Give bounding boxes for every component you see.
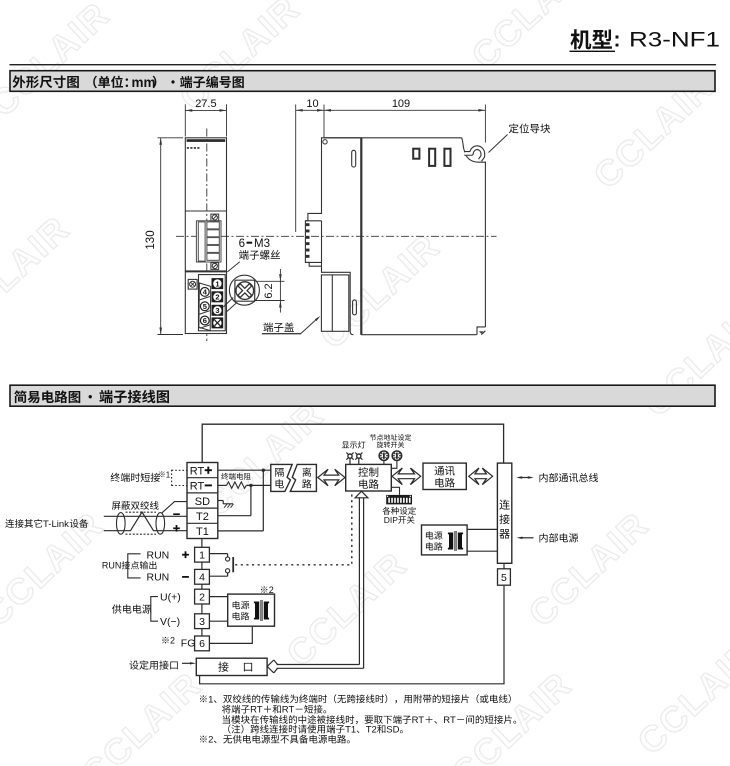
svg-text:CCLAIR: CCLAIR	[278, 543, 414, 674]
svg-text:M3: M3	[254, 238, 270, 250]
svg-text:R3-NF1: R3-NF1	[629, 29, 720, 52]
svg-text:T2: T2	[196, 511, 209, 523]
svg-text:6: 6	[199, 638, 205, 650]
svg-text:RT: RT	[282, 705, 295, 716]
svg-text:3: 3	[215, 306, 219, 315]
svg-text:RUN: RUN	[102, 561, 122, 571]
svg-text:U(+): U(+)	[160, 591, 181, 603]
svg-text:RT: RT	[250, 705, 263, 716]
svg-text::: :	[614, 29, 621, 52]
svg-text:2: 2	[199, 591, 205, 603]
svg-text:RT: RT	[190, 465, 205, 477]
svg-text:5: 5	[501, 572, 507, 584]
svg-text:CCLAIR: CCLAIR	[629, 631, 730, 762]
svg-text:6: 6	[239, 238, 245, 250]
svg-text:V(−): V(−)	[160, 616, 180, 628]
svg-text:CCLAIR: CCLAIR	[0, 207, 78, 338]
svg-text:RT: RT	[443, 715, 456, 726]
svg-text:2: 2	[208, 735, 213, 746]
svg-text:T-Link: T-Link	[43, 519, 69, 530]
svg-text:SD: SD	[195, 496, 210, 508]
svg-text:CCLAIR: CCLAIR	[443, 663, 579, 766]
svg-text:27.5: 27.5	[195, 98, 216, 110]
svg-text:FG: FG	[181, 637, 196, 649]
svg-text:4: 4	[199, 572, 205, 584]
svg-text:T1: T1	[345, 725, 356, 736]
svg-text:CCLAIR: CCLAIR	[171, 0, 307, 118]
svg-text:1: 1	[166, 470, 171, 479]
svg-text:CCLAIR: CCLAIR	[520, 503, 656, 634]
svg-text:T1: T1	[196, 526, 209, 538]
svg-text:RUN: RUN	[147, 572, 170, 584]
svg-text:1: 1	[215, 279, 219, 288]
svg-text:6: 6	[203, 316, 207, 325]
svg-text:130: 130	[145, 230, 157, 249]
svg-text:RUN: RUN	[147, 549, 170, 561]
svg-text:mm: mm	[132, 75, 156, 90]
svg-text:T2: T2	[366, 725, 377, 736]
svg-text:DIP: DIP	[384, 515, 399, 525]
svg-text:RT: RT	[412, 715, 425, 726]
svg-text:6.2: 6.2	[263, 283, 275, 298]
svg-text:2: 2	[170, 636, 175, 646]
svg-text:109: 109	[392, 98, 410, 110]
svg-text:5: 5	[203, 302, 207, 311]
svg-text:1: 1	[199, 550, 205, 562]
svg-text:10: 10	[306, 98, 318, 110]
svg-text:CCLAIR: CCLAIR	[0, 0, 118, 124]
svg-text:CCLAIR: CCLAIR	[73, 663, 209, 766]
svg-text:1: 1	[208, 694, 213, 705]
svg-text:3: 3	[199, 616, 205, 628]
svg-text:2: 2	[215, 293, 219, 302]
svg-text:SD: SD	[386, 725, 399, 736]
svg-text:RT: RT	[190, 481, 205, 493]
